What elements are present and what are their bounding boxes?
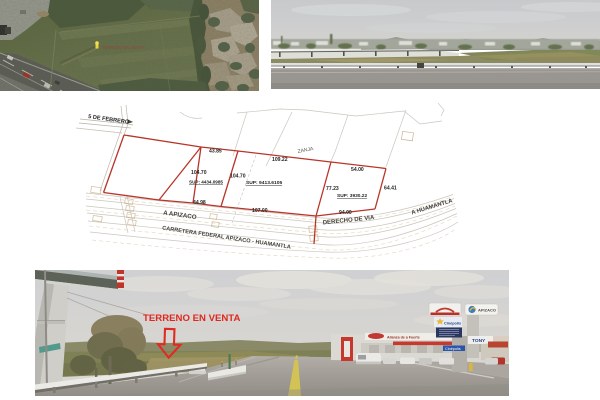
svg-text:54.00: 54.00: [351, 167, 364, 173]
svg-text:APIZACO: APIZACO: [478, 308, 496, 313]
svg-text:A HUAMANTLA: A HUAMANTLA: [411, 198, 454, 216]
svg-text:5 DE FEBRERO: 5 DE FEBRERO: [88, 114, 130, 126]
svg-text:DERECHO DE VIA: DERECHO DE VIA: [323, 215, 376, 226]
svg-text:CARRETERA FEDERAL APIZACO - HU: CARRETERA FEDERAL APIZACO - HUAMANTLA: [162, 226, 291, 251]
svg-text:44.98: 44.98: [193, 200, 206, 206]
svg-text:104.70: 104.70: [230, 174, 246, 180]
svg-text:Cinépolis: Cinépolis: [445, 347, 461, 351]
svg-text:77.23: 77.23: [326, 186, 339, 192]
svg-text:Alianza de a Fuerte: Alianza de a Fuerte: [387, 335, 420, 339]
svg-text:43.85: 43.85: [209, 149, 222, 155]
svg-text:SUP: 4434.0985: SUP: 4434.0985: [189, 180, 223, 185]
svg-text:TONY: TONY: [472, 338, 486, 344]
svg-text:107.00: 107.00: [252, 208, 268, 214]
svg-text:SUP: 9413.6105: SUP: 9413.6105: [246, 180, 282, 186]
svg-text:TERRENO EN VENTA: TERRENO EN VENTA: [143, 313, 240, 324]
svg-text:109.22: 109.22: [272, 157, 288, 163]
svg-text:Cinépolis: Cinépolis: [444, 322, 461, 326]
svg-text:ZANJA: ZANJA: [297, 146, 314, 155]
svg-text:64.41: 64.41: [384, 186, 397, 192]
svg-text:SUP: 3930.22: SUP: 3930.22: [337, 193, 367, 199]
svg-text:94.00: 94.00: [339, 210, 352, 216]
svg-text:104.70: 104.70: [191, 170, 207, 176]
